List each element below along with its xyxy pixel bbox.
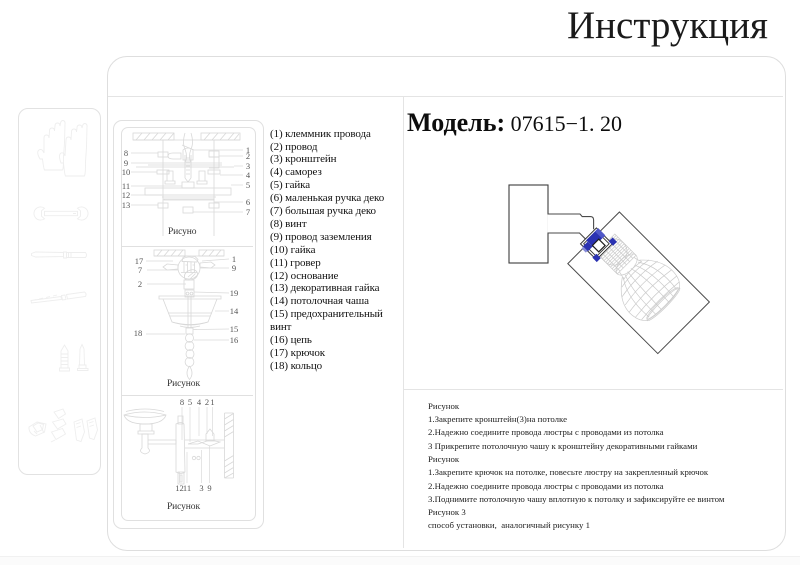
svg-text:12: 12 [122,190,130,200]
svg-text:7: 7 [138,265,142,275]
svg-text:9: 9 [207,483,211,493]
svg-text:3: 3 [199,483,203,493]
svg-text:7: 7 [246,207,250,217]
svg-text:11: 11 [183,483,191,493]
svg-text:16: 16 [230,335,239,345]
svg-text:8: 8 [124,148,128,158]
svg-text:5: 5 [246,180,250,190]
svg-text:10: 10 [122,167,130,177]
svg-text:2: 2 [205,397,209,407]
svg-text:2: 2 [246,151,250,161]
svg-text:4: 4 [246,170,251,180]
svg-text:18: 18 [134,328,143,338]
svg-text:19: 19 [230,288,239,298]
svg-text:6: 6 [246,197,250,207]
svg-text:8: 8 [180,397,184,407]
svg-text:15: 15 [230,324,239,334]
svg-text:4: 4 [197,397,202,407]
svg-text:9: 9 [232,263,236,273]
svg-text:13: 13 [122,200,130,210]
svg-text:2: 2 [138,279,142,289]
svg-text:14: 14 [230,306,239,316]
svg-text:5: 5 [188,397,192,407]
svg-text:1: 1 [210,397,214,407]
